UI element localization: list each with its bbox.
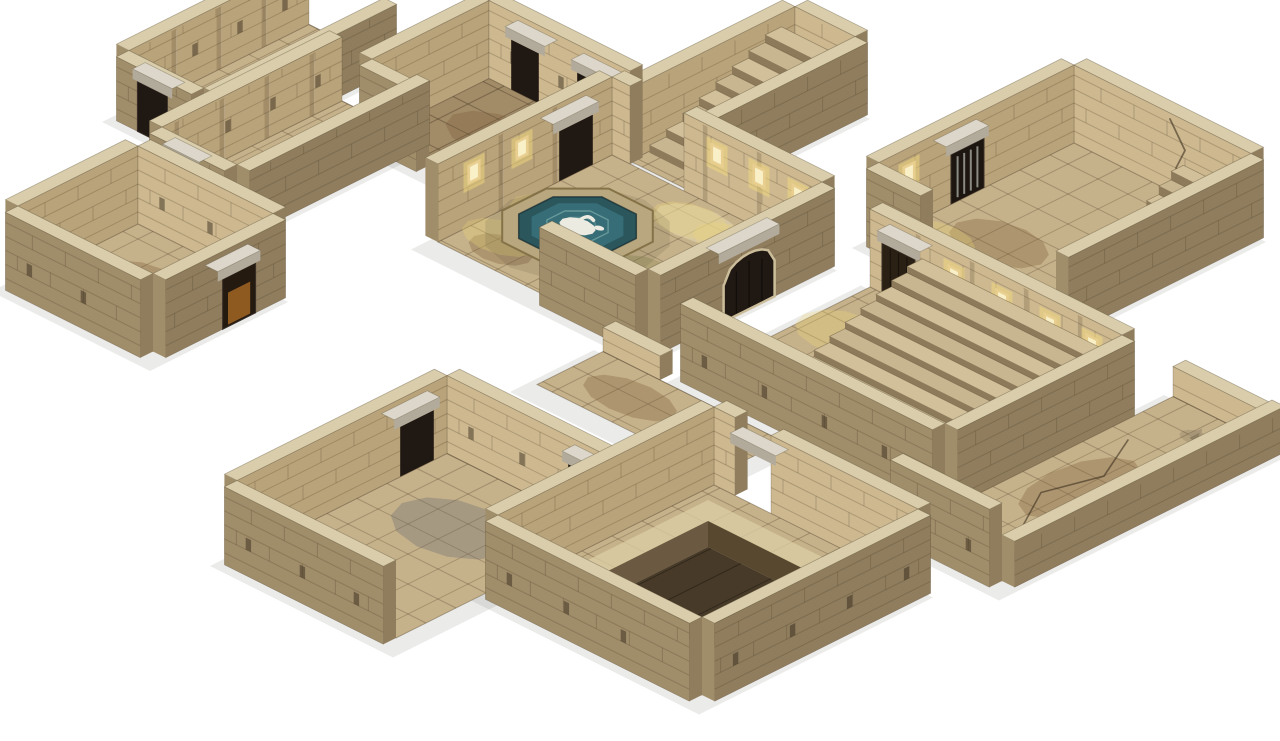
dungeon-scene-svg (0, 0, 1280, 741)
dungeon-tileset-render (0, 0, 1280, 741)
